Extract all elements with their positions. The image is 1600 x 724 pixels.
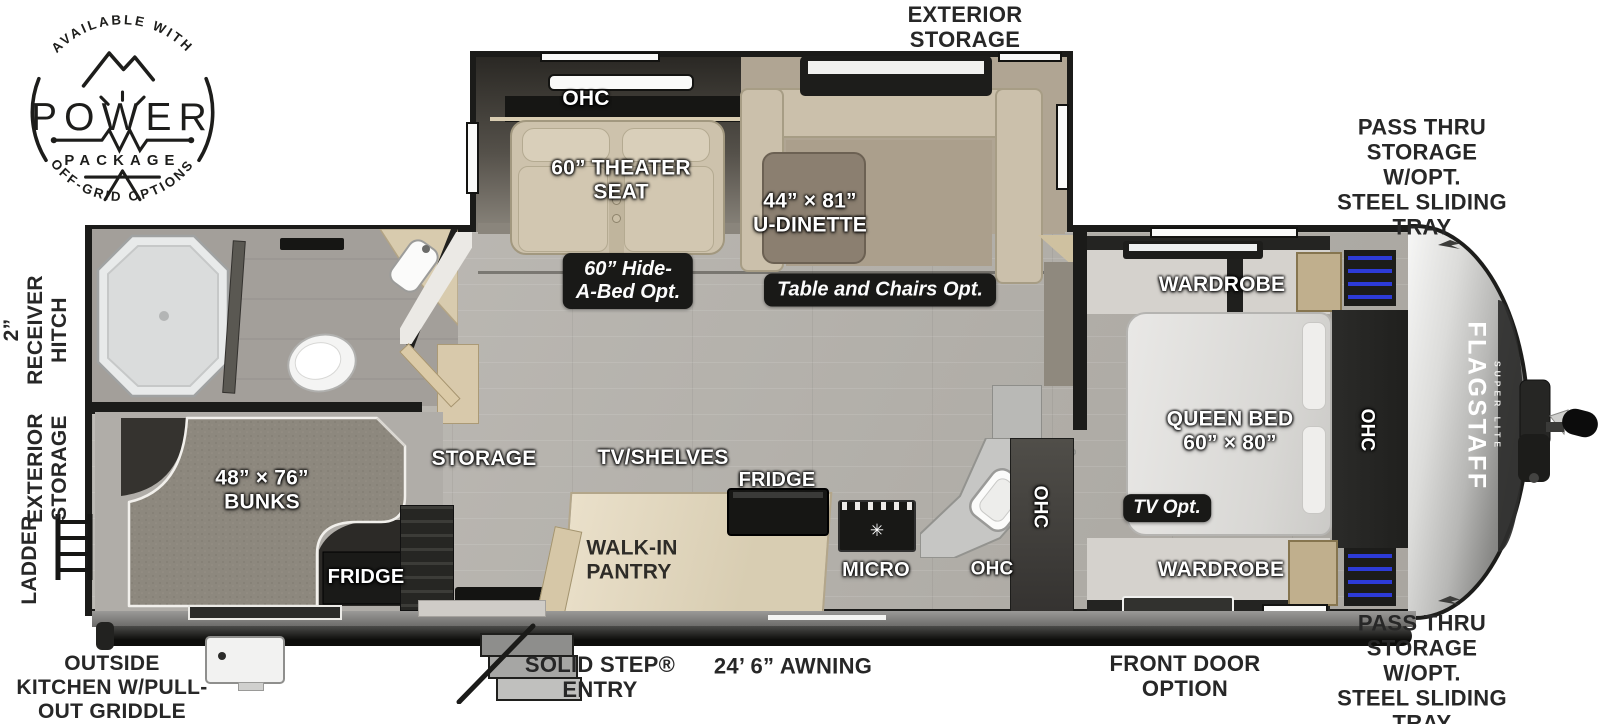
logo-subtitle: PACKAGE <box>64 153 180 169</box>
label-queen-bed: QUEEN BED 60” × 80” <box>1167 407 1294 454</box>
label-ohc-counter: OHC <box>971 558 1014 579</box>
floorplan: ✳ SUPER LITE FLAGSTAFF <box>0 0 1600 724</box>
kitchen-fridge-highlight <box>733 492 823 498</box>
slide-wall-slot-left <box>540 52 660 62</box>
outside-kitchen-box <box>205 636 285 684</box>
hitch-bar <box>1546 422 1564 432</box>
label-wardrobe-bottom: WARDROBE <box>1158 558 1284 582</box>
badge-hide-a-bed-option: 60” Hide- A-Bed Opt. <box>563 253 693 309</box>
stove-burner-icon: ✳ <box>870 521 884 541</box>
label-exterior-storage-top: EXTERIOR STORAGE <box>908 2 1023 52</box>
bedroom-dresser <box>1288 540 1338 606</box>
slide-left-window <box>466 122 479 194</box>
badge-table-chairs-option: Table and Chairs Opt. <box>764 274 996 307</box>
label-kitchen-fridge: FRIDGE <box>739 469 816 491</box>
label-solid-step-entry: SOLID STEP® ENTRY <box>525 652 675 702</box>
skirt-slot <box>768 615 886 620</box>
blue-accent-slats <box>1348 554 1392 600</box>
label-ohc-slide: OHC <box>562 87 609 111</box>
slide-wall-slot-right <box>998 52 1062 62</box>
label-ladder: LADDER <box>18 475 42 645</box>
dinette-bench-right <box>995 88 1043 284</box>
stove-knobs <box>842 502 912 510</box>
label-walk-in-pantry: WALK-IN PANTRY <box>586 536 677 583</box>
bath-faucet <box>422 245 430 253</box>
awning-end-cap <box>96 622 114 650</box>
bathroom <box>92 229 458 406</box>
headboard-cabinet-bottom <box>1344 548 1396 606</box>
brand-logo: SUPER LITE FLAGSTAFF <box>1462 321 1503 490</box>
jack-foot <box>1529 473 1539 483</box>
storage-dresser <box>400 505 454 611</box>
bedroom-wall-slot-top <box>1150 227 1298 238</box>
awning-tube <box>100 626 1412 646</box>
bed-pillow <box>1302 426 1326 514</box>
label-u-dinette: 44” × 81” U-DINETTE <box>753 189 867 236</box>
ohc-cabinet-bedroom-top <box>1296 252 1342 312</box>
label-storage: STORAGE <box>432 447 537 471</box>
label-bunks: 48” × 76” BUNKS <box>215 466 308 513</box>
label-micro: MICRO <box>842 559 910 581</box>
headboard-cabinet-top <box>1344 250 1396 306</box>
tongue-hitch <box>1506 378 1600 488</box>
label-pass-thru-bottom: PASS THRU STORAGE W/OPT. STEEL SLIDING T… <box>1333 610 1511 724</box>
label-theater-seat: 60” THEATER SEAT <box>551 156 691 203</box>
dinette-corner-panel <box>1044 262 1074 386</box>
bedroom-window-glass <box>1129 244 1257 251</box>
badge-tv-option: TV Opt. <box>1123 494 1211 522</box>
label-wardrobe-top: WARDROBE <box>1159 273 1285 297</box>
mountains-icon <box>84 53 154 86</box>
logo-title: POWER <box>31 96 214 139</box>
label-front-door-option: FRONT DOOR OPTION <box>1110 651 1261 701</box>
skirt-hatch <box>188 605 342 620</box>
slide-right-window <box>1056 104 1069 190</box>
kitchen-bedroom-wall <box>1073 228 1087 430</box>
entry-landing <box>418 600 546 617</box>
outside-kitchen-tab <box>238 682 264 691</box>
slide-dinette-window-glass <box>808 61 984 74</box>
power-package-logo: AVAILABLE WITH POWER PACKAGE OFF-GRID OP… <box>20 10 225 215</box>
blue-accent-slats <box>1348 256 1392 300</box>
brand-name: FLAGSTAFF <box>1462 321 1491 490</box>
label-awning: 24’ 6” AWNING <box>714 653 872 678</box>
shower-drain <box>159 311 169 321</box>
kitchen-upper-cabinet <box>992 385 1042 439</box>
sofa-cupholder <box>612 214 621 223</box>
label-ohc-bed: OHC <box>1356 409 1377 452</box>
label-bunk-fridge: FRIDGE <box>328 566 405 588</box>
label-ohc-tall: OHC <box>1029 486 1050 529</box>
label-outside-kitchen: OUTSIDE KITCHEN W/PULL- OUT GRIDDLE <box>16 652 207 724</box>
bath-vent <box>280 238 344 250</box>
brand-series: SUPER LITE <box>1493 361 1503 451</box>
outside-kitchen-knob <box>218 652 226 660</box>
label-tv-shelves: TV/SHELVES <box>597 446 728 470</box>
bed-pillow <box>1302 322 1326 410</box>
label-pass-thru-top: PASS THRU STORAGE W/OPT. STEEL SLIDING T… <box>1333 114 1511 239</box>
logo-arc-top-text: AVAILABLE WITH <box>48 12 196 55</box>
